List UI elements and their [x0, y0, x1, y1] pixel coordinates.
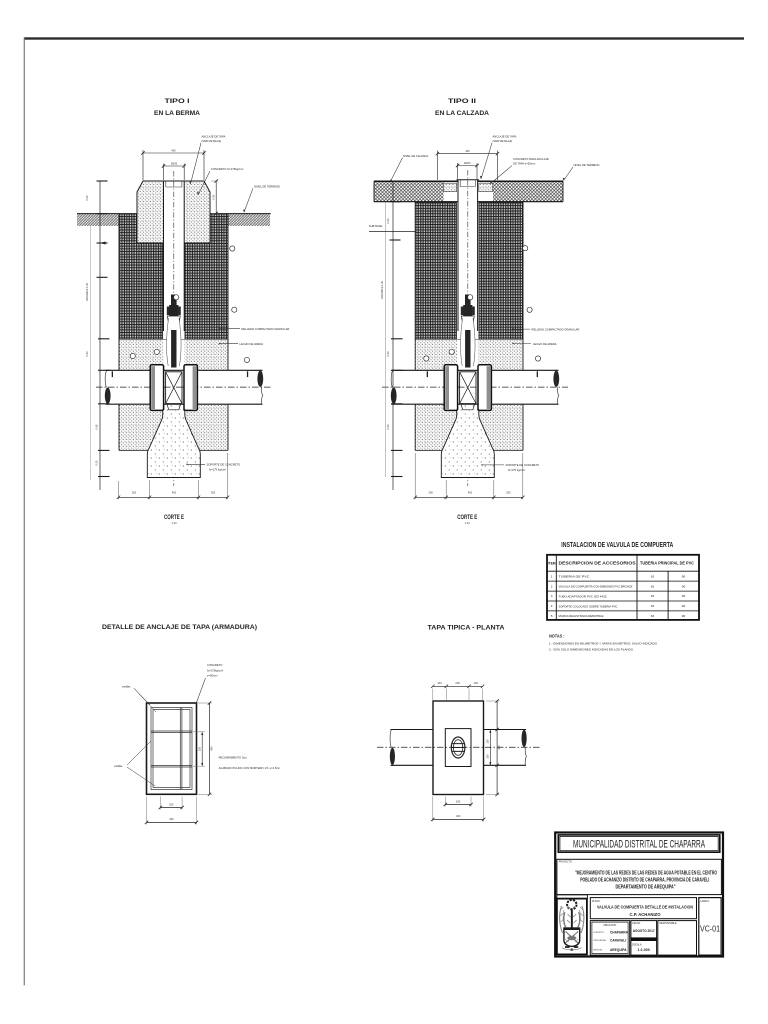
svg-text:AREQUIPA: AREQUIPA: [610, 948, 627, 952]
svg-text:NIVEL DE TERRENO: NIVEL DE TERRENO: [574, 163, 600, 167]
svg-text:VARIABLE 1.20: VARIABLE 1.20: [85, 282, 89, 301]
svg-text:400: 400: [465, 149, 470, 153]
svg-text:VARIABLE 1.20: VARIABLE 1.20: [380, 280, 384, 299]
svg-text:90: 90: [682, 604, 686, 608]
svg-text:NIVEL DE CALZADA: NIVEL DE CALZADA: [403, 154, 428, 158]
svg-text:TUBERIA PRINCIPAL DE PVC: TUBERIA PRINCIPAL DE PVC: [640, 560, 694, 565]
svg-text:4: 4: [551, 604, 553, 608]
svg-text:TUBO ADAPTADOR PVC ISO 4435: TUBO ADAPTADOR PVC ISO 4435: [559, 594, 607, 598]
svg-text:fc=175 kg/cm²: fc=175 kg/cm²: [209, 468, 226, 472]
svg-text:3: 3: [551, 594, 553, 598]
svg-text:250: 250: [506, 491, 511, 495]
svg-text:63: 63: [651, 604, 655, 608]
svg-text:PLANO:: PLANO:: [592, 900, 601, 903]
svg-text:ITEM: ITEM: [548, 562, 556, 566]
svg-text:90: 90: [682, 614, 686, 618]
svg-text:1:1.000: 1:1.000: [638, 948, 650, 952]
svg-text:63: 63: [651, 574, 655, 578]
svg-text:AGOSTO 2017: AGOSTO 2017: [633, 929, 655, 933]
svg-text:varillas: varillas: [114, 764, 123, 768]
svg-text:C.P. ACHANIZO: C.P. ACHANIZO: [630, 912, 662, 917]
svg-text:0.30: 0.30: [386, 351, 390, 357]
svg-text:SOPORTE DE CONCRETO: SOPORTE DE CONCRETO: [506, 463, 540, 467]
svg-text:DETALLE DE ANCLAJE DE TAPA (AR: DETALLE DE ANCLAJE DE TAPA (ARMADURA): [102, 624, 257, 631]
svg-text:CORTE E: CORTE E: [457, 514, 477, 521]
svg-text:DISTRITO :: DISTRITO :: [594, 932, 606, 934]
svg-text:250: 250: [429, 491, 434, 495]
svg-text:RELLENO COMPACTADO GRANULAR: RELLENO COMPACTADO GRANULAR: [242, 327, 290, 331]
svg-text:2: 2: [551, 584, 553, 588]
svg-text:100: 100: [437, 681, 442, 685]
svg-text:SUB BASE: SUB BASE: [369, 224, 383, 228]
svg-text:(VER DETALLE): (VER DETALLE): [202, 139, 222, 143]
svg-text:63: 63: [651, 614, 655, 618]
svg-text:90: 90: [682, 574, 686, 578]
svg-text:CORTE E: CORTE E: [164, 514, 184, 521]
svg-text:ESCALA:: ESCALA:: [632, 944, 642, 947]
svg-text:0.45: 0.45: [95, 424, 99, 430]
svg-text:SOPORTE COLOCADO SOBRE TUBERIA: SOPORTE COLOCADO SOBRE TUBERIA PVC: [559, 604, 619, 608]
svg-text:1:10: 1:10: [465, 521, 471, 525]
svg-text:400: 400: [169, 817, 174, 821]
svg-text:PROVINCIA:: PROVINCIA:: [594, 939, 607, 942]
svg-text:250: 250: [211, 491, 216, 495]
svg-text:MUNICIPALIDAD DISTRITAL DE CHA: MUNICIPALIDAD DISTRITAL DE CHAPARRA: [573, 839, 705, 851]
svg-text:RESPONSABLE: RESPONSABLE: [659, 922, 677, 925]
svg-text:TAPA TIPICA - PLANTA: TAPA TIPICA - PLANTA: [428, 625, 505, 632]
svg-text:ANCLAJE DE TAPA: ANCLAJE DE TAPA: [493, 135, 517, 139]
svg-text:CONCRETO PARA ANCLAJE: CONCRETO PARA ANCLAJE: [513, 157, 549, 161]
svg-text:VC-01: VC-01: [700, 924, 720, 933]
svg-text:EN LA CALZADA: EN LA CALZADA: [435, 110, 490, 117]
svg-text:200: 200: [169, 802, 174, 806]
svg-text:90: 90: [682, 594, 686, 598]
svg-text:SOPORTE DE CONCRETO: SOPORTE DE CONCRETO: [207, 462, 241, 466]
svg-text:LAMINA:: LAMINA:: [700, 900, 710, 903]
svg-text:CONCRETO fc=175kg/cm²: CONCRETO fc=175kg/cm²: [211, 167, 243, 171]
svg-text:0.30: 0.30: [85, 195, 89, 201]
svg-text:NOTAS :: NOTAS :: [549, 634, 565, 639]
svg-text:e=50mm: e=50mm: [207, 674, 218, 678]
svg-text:FECHA:: FECHA:: [632, 922, 641, 925]
svg-text:2.- SON SOLO DIMENSIONES INDIC: 2.- SON SOLO DIMENSIONES INDICADAS EN LO…: [549, 648, 633, 652]
svg-text:LECHO DE ARENA: LECHO DE ARENA: [240, 342, 264, 346]
svg-text:63: 63: [651, 594, 655, 598]
svg-text:MARCA REGISTRADA REBATIBLE: MARCA REGISTRADA REBATIBLE: [559, 614, 604, 618]
svg-text:400: 400: [497, 745, 501, 750]
svg-text:REGION :: REGION :: [594, 950, 605, 952]
svg-text:TIPO II: TIPO II: [448, 98, 476, 105]
svg-text:LECHO DE ARENA: LECHO DE ARENA: [533, 342, 557, 346]
svg-text:5: 5: [551, 614, 553, 618]
svg-text:"MEJORAMIENTO DE LAS REDES DE: "MEJORAMIENTO DE LAS REDES DE LAS REDES …: [575, 871, 717, 877]
svg-text:ANCLAJE DE TAPA: ANCLAJE DE TAPA: [202, 135, 226, 139]
svg-text:TIPO I: TIPO I: [165, 98, 190, 105]
svg-text:63: 63: [651, 584, 655, 588]
svg-text:90: 90: [682, 584, 686, 588]
svg-text:POBLADO DE ACHANIZO DISTRITO D: POBLADO DE ACHANIZO DISTRITO DE CHAPARRA…: [580, 878, 709, 884]
svg-text:1: 1: [551, 574, 553, 578]
svg-text:DEPARTAMENTO DE AREQUIPA": DEPARTAMENTO DE AREQUIPA": [616, 885, 676, 891]
svg-text:0.25: 0.25: [95, 460, 99, 466]
svg-text:DESCRIPCION DE ACCESORIOS: DESCRIPCION DE ACCESORIOS: [559, 560, 636, 565]
svg-text:0.30: 0.30: [211, 194, 215, 200]
svg-text:fc=175kg/cm²: fc=175kg/cm²: [207, 668, 223, 672]
svg-text:Ø200: Ø200: [464, 161, 471, 165]
svg-text:200: 200: [456, 799, 461, 803]
svg-text:fc=175 kg/cm²: fc=175 kg/cm²: [508, 468, 525, 472]
svg-text:400: 400: [456, 814, 461, 818]
svg-text:TUBERIA DE PVC: TUBERIA DE PVC: [559, 575, 591, 579]
svg-text:CONCRETO: CONCRETO: [207, 663, 222, 667]
svg-text:1.- DIMENSIONES EN MILIMETROS: 1.- DIMENSIONES EN MILIMETROS Y VARAS EN…: [549, 641, 657, 645]
svg-text:0.30: 0.30: [85, 351, 89, 357]
svg-text:RECUBRIMIENTO 3cm: RECUBRIMIENTO 3cm: [219, 756, 248, 760]
svg-text:400: 400: [172, 491, 177, 495]
svg-text:INSTALACION DE VALVULA DE COMP: INSTALACION DE VALVULA DE COMPUERTA: [561, 542, 673, 549]
svg-text:1:10: 1:10: [171, 521, 177, 525]
svg-text:250: 250: [132, 491, 137, 495]
svg-text:UBICACION:: UBICACION:: [603, 924, 617, 927]
svg-text:DE TAPA e=50mm: DE TAPA e=50mm: [513, 162, 536, 166]
svg-text:0.45: 0.45: [386, 424, 390, 430]
svg-text:150: 150: [197, 746, 201, 751]
svg-text:150: 150: [485, 739, 489, 744]
svg-text:CARAVELI: CARAVELI: [610, 938, 626, 942]
svg-text:0.20: 0.20: [386, 218, 390, 224]
svg-text:250: 250: [485, 754, 489, 759]
svg-text:varillas: varillas: [122, 685, 131, 689]
svg-text:VALVULA DE COMPUERTA CON EMBON: VALVULA DE COMPUERTA CON EMBONES PVC BRO…: [559, 585, 633, 589]
svg-text:EN LA BERMA: EN LA BERMA: [154, 110, 201, 117]
svg-text:(VER DETALLE): (VER DETALLE): [493, 139, 513, 143]
svg-text:Ø200: Ø200: [171, 162, 178, 166]
svg-text:PROYECTO:: PROYECTO:: [559, 862, 573, 864]
svg-text:NIVEL DE TERRENO: NIVEL DE TERRENO: [254, 184, 280, 188]
svg-text:400: 400: [171, 149, 176, 153]
svg-text:400: 400: [210, 746, 214, 751]
svg-text:RELLENO COMPACTADO GRANULAR: RELLENO COMPACTADO GRANULAR: [532, 327, 580, 331]
svg-text:CHAPARRA: CHAPARRA: [610, 931, 629, 935]
svg-text:400: 400: [468, 491, 473, 495]
svg-text:200: 200: [455, 681, 460, 685]
svg-text:100: 100: [474, 681, 479, 685]
svg-text:ACABADO PULIDO CON MORTERO 1:5: ACABADO PULIDO CON MORTERO 1:5, e=1.5cm: [219, 766, 281, 770]
svg-text:VALVULA DE COMPUERTA DETALLE D: VALVULA DE COMPUERTA DETALLE DE INSTALAC…: [597, 905, 693, 910]
